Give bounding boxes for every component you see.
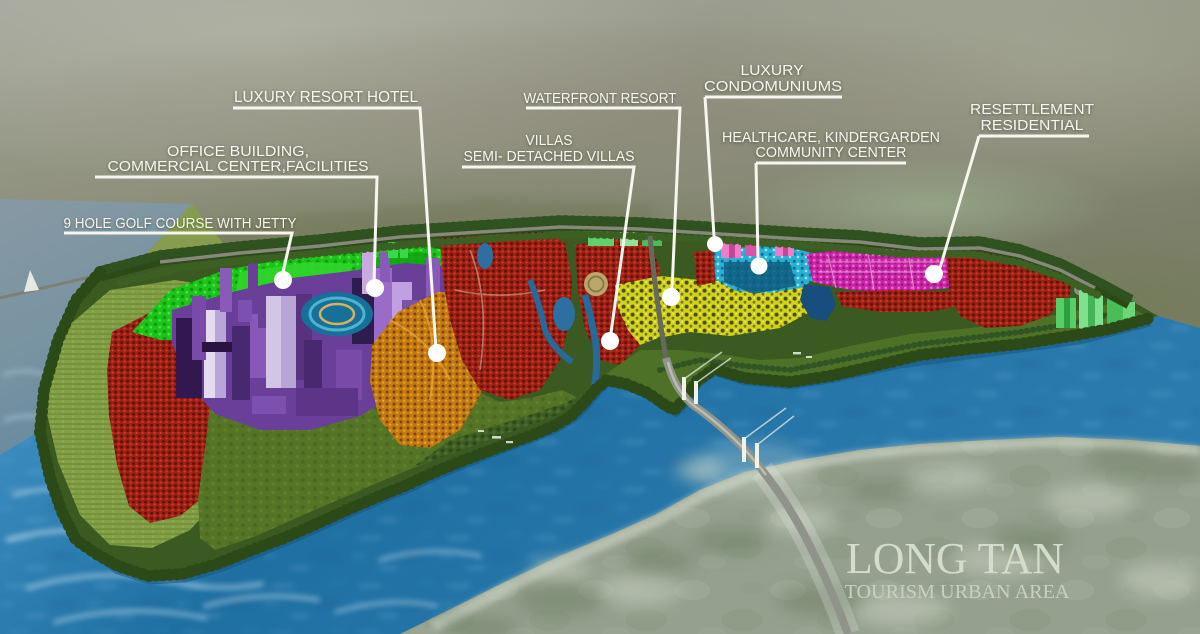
svg-text:RESIDENTIAL: RESIDENTIAL xyxy=(981,117,1084,134)
svg-text:LUXURY RESORT HOTEL: LUXURY RESORT HOTEL xyxy=(234,89,418,106)
svg-text:LONG TAN: LONG TAN xyxy=(846,534,1064,583)
svg-text:WATERFRONT RESORT: WATERFRONT RESORT xyxy=(524,90,677,107)
svg-text:TOURISM URBAN AREA: TOURISM URBAN AREA xyxy=(845,581,1071,603)
svg-text:VILLAS: VILLAS xyxy=(526,133,573,149)
svg-text:LUXURY: LUXURY xyxy=(741,62,804,79)
svg-text:CONDOMUNIUMS: CONDOMUNIUMS xyxy=(704,78,842,95)
svg-text:COMMERCIAL CENTER,FACILITIES: COMMERCIAL CENTER,FACILITIES xyxy=(108,158,369,175)
svg-text:RESETTLEMENT: RESETTLEMENT xyxy=(970,101,1094,118)
svg-text:SEMI- DETACHED VILLAS: SEMI- DETACHED VILLAS xyxy=(464,149,635,165)
svg-text:9 HOLE GOLF COURSE WITH JETTY: 9 HOLE GOLF COURSE WITH JETTY xyxy=(64,215,297,232)
svg-text:COMMUNITY CENTER: COMMUNITY CENTER xyxy=(756,144,907,161)
